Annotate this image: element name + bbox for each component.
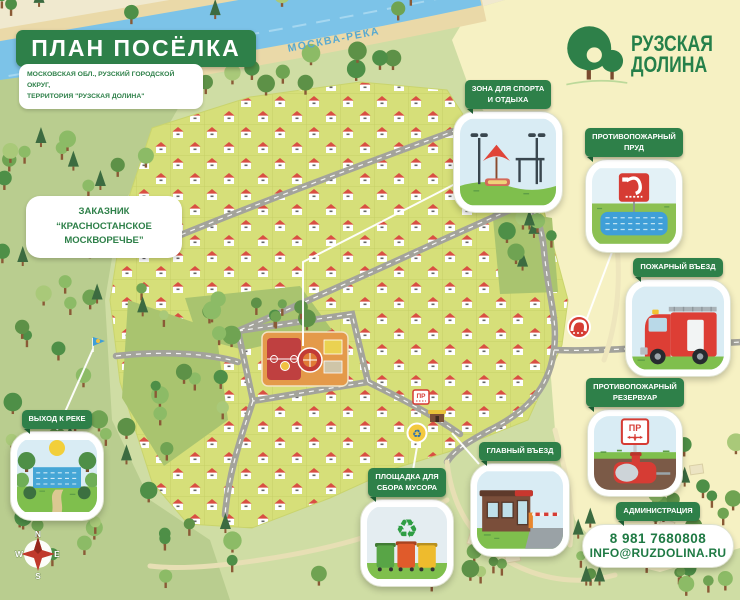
callout-fire-pond: ПРОТИВОПОЖАРНЫЙ ПРУД [578,128,690,258]
village-plan-poster: ПР ♻ ПЛАН ПОСЁЛКА МОСКОВСКАЯ ОБЛ., РУЗСК… [0,0,740,600]
plan-title: ПЛАН ПОСЁЛКА [16,30,256,67]
callout-trash-label: ПЛОЩАДКА ДЛЯ СБОРА МУСОРА [368,468,445,497]
callout-main-entrance: ГЛАВНЫЙ ВЪЕЗД [466,440,574,562]
logo-title: РУЗСКАЯ ДОЛИНА [631,34,713,76]
callout-fire-reservoir-card[interactable]: ПР [587,409,683,497]
marker-pr-sign[interactable]: ПР [413,390,429,404]
admin-phone: 8 981 7680808 [610,531,707,546]
plan-subtitle: МОСКОВСКАЯ ОБЛ., РУЗСКИЙ ГОРОДСКОЙ ОКРУГ… [19,64,203,109]
fire-truck-icon [632,286,724,370]
callout-trash: ПЛОЩАДКА ДЛЯ СБОРА МУСОРА ♻ [356,468,458,592]
recycle-icon: ♻ [412,429,422,441]
callout-fire-entrance-card[interactable] [625,279,731,377]
callout-river-exit: ВЫХОД К РЕКЕ [8,408,106,526]
plan-title-text: ПЛАН ПОСЁЛКА [31,35,240,62]
callout-fire-entrance-label: ПОЖАРНЫЙ ВЪЕЗД [633,258,722,277]
compass-icon: N E S W [12,528,64,580]
callout-sport: ЗОНА ДЛЯ СПОРТА И ОТДЫХА [447,80,569,218]
pr-sign-text: ПР [416,393,426,400]
reservoir-pr-text: ПР [629,423,641,433]
entrance-building-icon [477,470,563,550]
recycle-symbol-icon: ♻ [396,515,419,543]
callout-main-entrance-card[interactable] [470,463,570,557]
central-sport-ground[interactable] [262,332,348,386]
compass-letter-s: S [35,571,41,580]
callout-main-entrance-label: ГЛАВНЫЙ ВЪЕЗД [479,442,560,461]
logo-tree-icon [563,16,631,94]
marker-fire-pond[interactable] [568,316,590,338]
admin-email: INFO@RUZDOLINA.RU [590,546,727,560]
trash-bins-icon: ♻ [367,506,447,580]
sport-playground-icon [460,118,556,206]
compass-letter-e: E [54,549,60,559]
callout-fire-pond-card[interactable] [585,159,683,253]
fire-reservoir-icon: ПР [594,416,676,490]
marker-guardhouse[interactable] [428,410,446,422]
marker-recycle[interactable]: ♻ [408,424,427,443]
fire-pond-icon [592,166,676,246]
callout-sport-card[interactable] [453,111,563,213]
compass-letter-n: N [35,529,41,539]
callout-fire-entrance: ПОЖАРНЫЙ ВЪЕЗД [620,256,736,382]
callout-fire-reservoir: ПРОТИВОПОЖАРНЫЙ РЕЗЕРВУАР ПР [576,378,694,502]
callout-river-exit-card[interactable] [10,431,104,521]
compass-letter-w: W [15,549,24,559]
callout-trash-card[interactable]: ♻ [360,499,454,587]
nature-reserve-label: ЗАКАЗНИК “КРАСНОСТАНСКОЕ МОСКВОРЕЧЬЕ” [26,196,182,258]
callout-sport-label: ЗОНА ДЛЯ СПОРТА И ОТДЫХА [465,80,552,109]
brand-logo: РУЗСКАЯ ДОЛИНА [563,16,733,94]
administration-contacts[interactable]: 8 981 7680808 INFO@RUZDOLINA.RU [582,524,734,568]
logo-line2: ДОЛИНА [631,55,713,76]
callout-river-exit-label: ВЫХОД К РЕКЕ [22,410,93,429]
callout-fire-reservoir-label: ПРОТИВОПОЖАРНЫЙ РЕЗЕРВУАР [586,378,684,407]
callout-administration-label: АДМИНИСТРАЦИЯ [616,502,699,521]
river-access-icon [17,438,97,514]
callout-fire-pond-label: ПРОТИВОПОЖАРНЫЙ ПРУД [585,128,683,157]
callout-administration: АДМИНИСТРАЦИЯ 8 981 7680808 INFO@RUZDOLI… [582,500,734,568]
